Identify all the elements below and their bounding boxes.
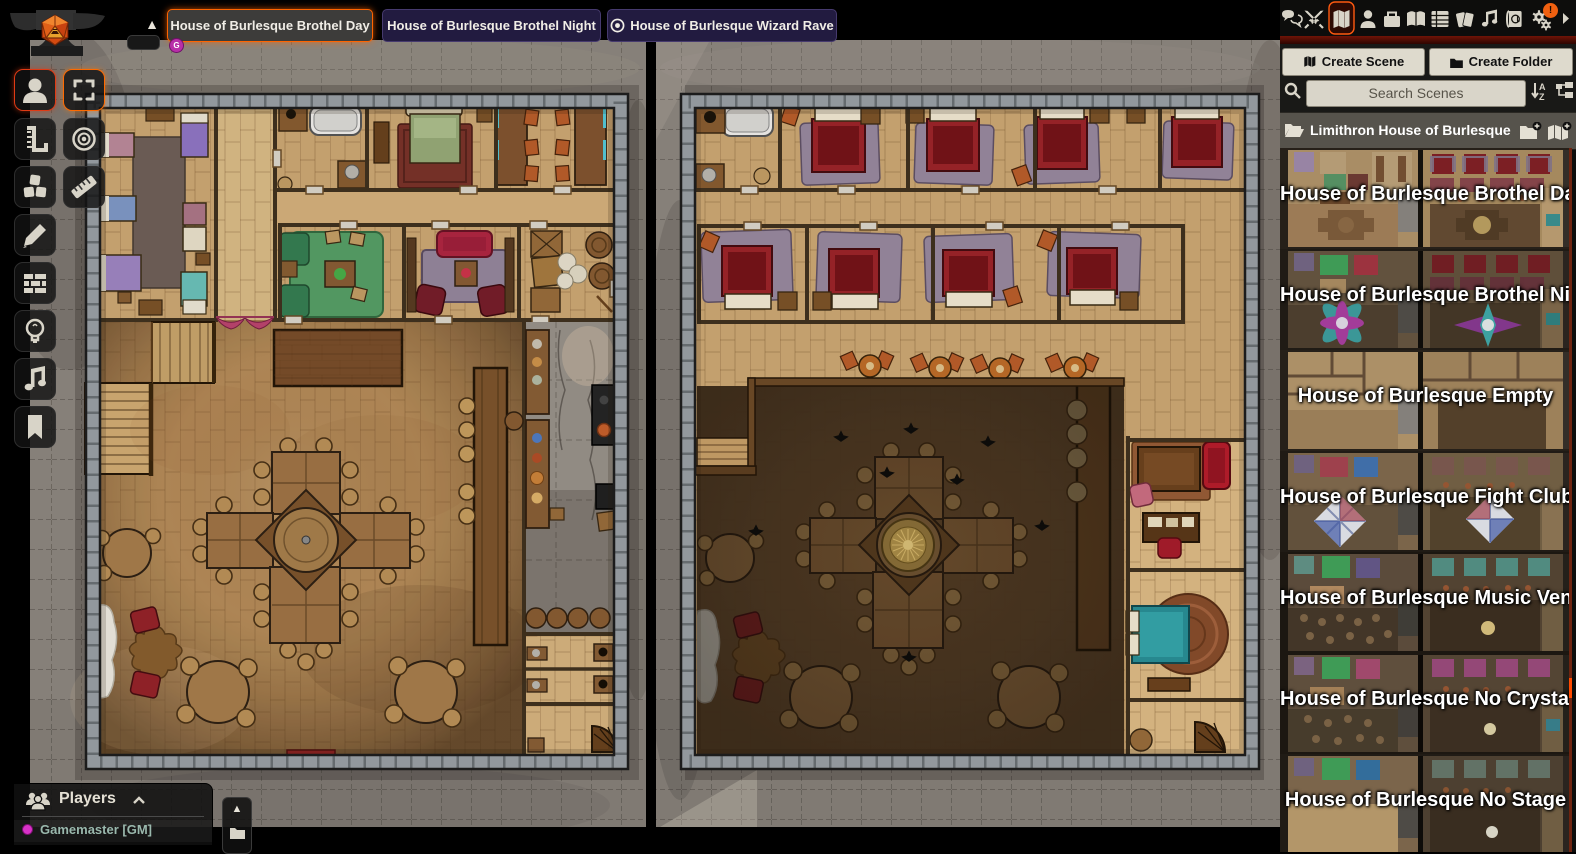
svg-text:A: A [1539,82,1546,92]
svg-text:Z: Z [1539,92,1545,101]
